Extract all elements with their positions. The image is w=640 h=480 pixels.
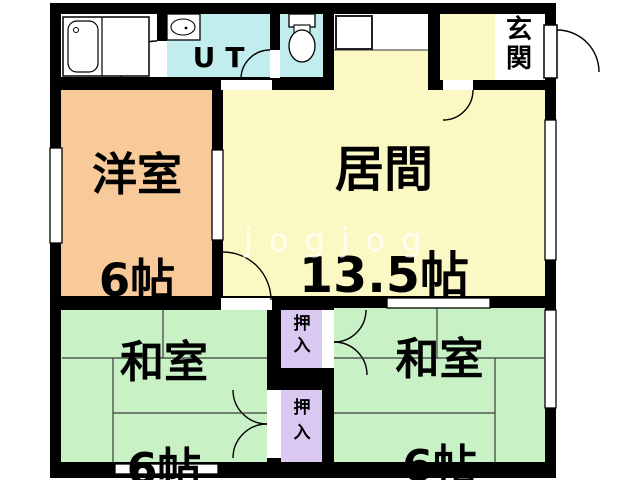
gap-utility-living [221, 80, 272, 90]
kitchen-sink-icon [336, 16, 372, 49]
utility-label: UT [167, 41, 270, 74]
bathtub-icon [68, 21, 98, 72]
window-western-left [50, 148, 62, 243]
japanese-room-right-size: 6帖 [402, 441, 477, 480]
living-room-name: 居間 [335, 141, 433, 198]
japanese-room-right-label: 和室 6帖 [334, 333, 545, 480]
window-japanese-right [545, 310, 556, 408]
japanese-room-left-label: 和室 6帖 [61, 336, 267, 480]
kitchen-floor [334, 50, 428, 90]
gap-closet-bottom-opening [267, 390, 281, 458]
entrance-door-leaf [544, 25, 557, 78]
toilet-bowl-icon [289, 30, 315, 62]
bathtub-faucet-icon [74, 28, 79, 33]
entrance-label: 玄関 [504, 16, 534, 73]
entrance-hall-floor [440, 14, 495, 80]
gap-entrance-living [443, 80, 473, 90]
closet-top-label: 押入 [292, 313, 312, 357]
gap-closet-top-opening [322, 310, 334, 368]
entrance-door-arc [557, 30, 599, 72]
window-living-right [545, 120, 556, 260]
gap-bath-utility [157, 41, 167, 77]
washbasin-drain-icon [185, 27, 188, 30]
watermark-text: jogjog [244, 221, 438, 259]
japanese-room-left-size: 6帖 [127, 444, 202, 480]
floorplan-canvas: 洋室 6帖 居間 13.5帖 和室 6帖 和室 6帖 玄関 UT 押入 押入 j… [0, 0, 640, 480]
western-room-label: 洋室 6帖 [62, 148, 212, 307]
western-room-name: 洋室 [92, 148, 182, 201]
western-room-size: 6帖 [99, 254, 175, 307]
washbasin-bowl-icon [171, 19, 195, 35]
japanese-room-right-name: 和室 [396, 334, 484, 385]
gap-utility-toilet [270, 50, 280, 78]
closet-bottom-label: 押入 [292, 396, 312, 445]
japanese-room-left-name: 和室 [120, 337, 208, 388]
sliding-door-western-living [212, 150, 223, 240]
